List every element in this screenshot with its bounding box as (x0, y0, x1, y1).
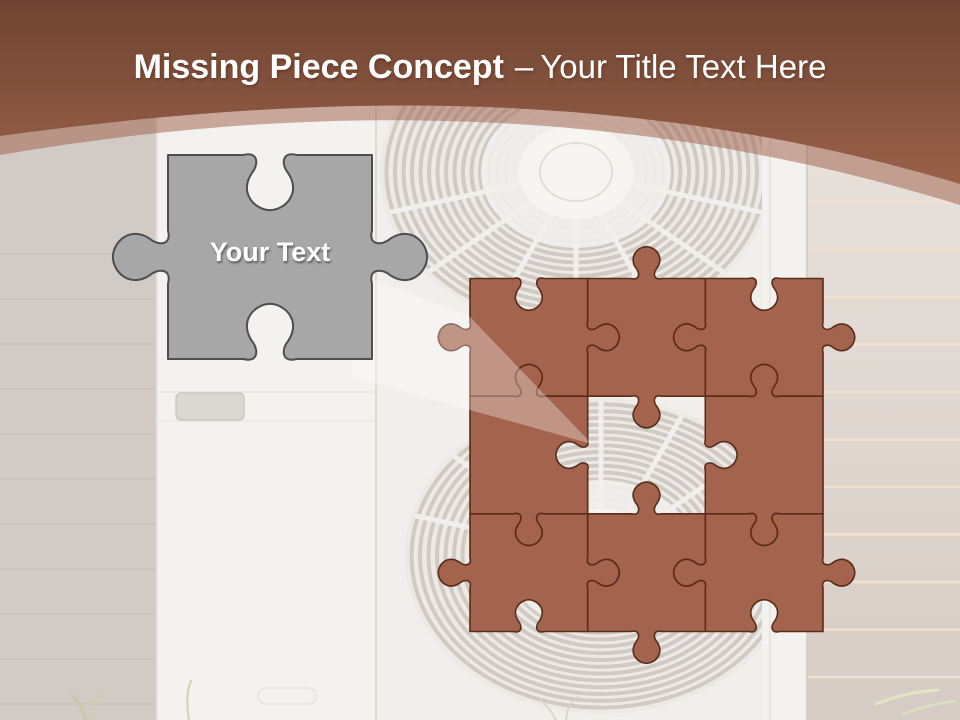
missing-piece-layer (0, 0, 960, 720)
slide-canvas: Missing Piece Concept–Your Title Text He… (0, 0, 960, 720)
missing-piece-label[interactable]: Your Text (168, 237, 372, 268)
